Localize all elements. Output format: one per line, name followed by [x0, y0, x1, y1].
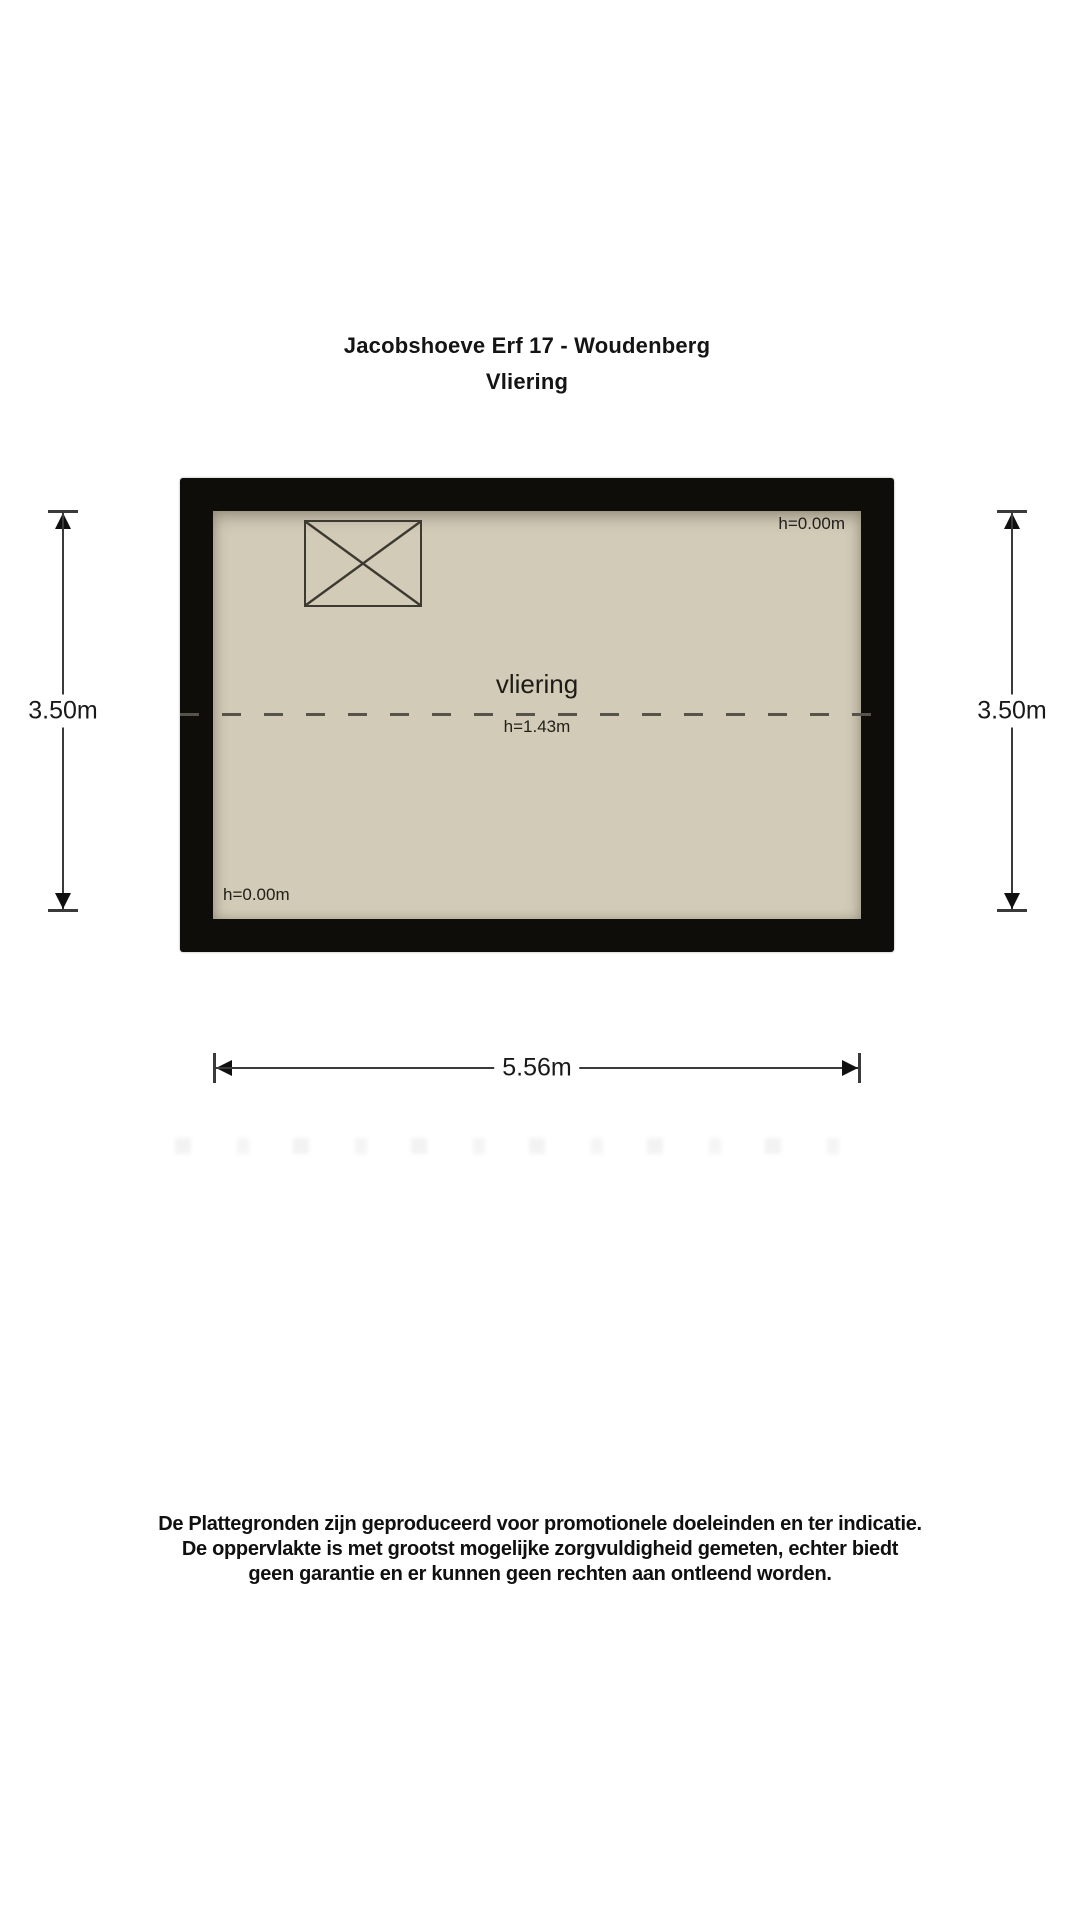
page-subtitle: Vliering — [0, 364, 1054, 400]
opening-x-symbol — [304, 520, 422, 607]
dimension-cap-right — [858, 1053, 861, 1083]
height-label-bottom-left: h=0.00m — [223, 885, 290, 905]
height-boundary-dashed-line — [180, 713, 894, 716]
arrow-down-icon — [55, 893, 71, 909]
dimension-right: 3.50m — [996, 510, 1028, 912]
title-block: Jacobshoeve Erf 17 - Woudenberg Vliering — [0, 328, 1054, 400]
dimension-left: 3.50m — [47, 510, 79, 912]
room-label: vliering — [213, 669, 861, 700]
dimension-bottom: 5.56m — [213, 1052, 861, 1084]
dimension-label-bottom: 5.56m — [494, 1053, 579, 1084]
floorplan-page: Jacobshoeve Erf 17 - Woudenberg Vliering… — [0, 0, 1080, 1920]
disclaimer-line: De oppervlakte is met grootst mogelijke … — [0, 1537, 1080, 1562]
floorplan: h=0.00m vliering h=1.43m h=0.00m — [180, 478, 894, 952]
disclaimer-text: De Plattegronden zijn geproduceerd voor … — [0, 1512, 1080, 1587]
dimension-cap-bottom — [997, 909, 1027, 912]
dimension-label-right: 3.50m — [973, 695, 1050, 728]
arrow-down-icon — [1004, 893, 1020, 909]
opening-x-icon — [306, 522, 420, 605]
faded-artifact-row — [175, 1138, 847, 1154]
height-label-center: h=1.43m — [213, 717, 861, 737]
disclaimer-line: geen garantie en er kunnen geen rechten … — [0, 1562, 1080, 1587]
disclaimer-line: De Plattegronden zijn geproduceerd voor … — [0, 1512, 1080, 1537]
height-label-top-right: h=0.00m — [778, 514, 845, 534]
dimension-cap-bottom — [48, 909, 78, 912]
page-title: Jacobshoeve Erf 17 - Woudenberg — [0, 328, 1054, 364]
dimension-label-left: 3.50m — [24, 695, 101, 728]
arrow-right-icon — [842, 1060, 858, 1076]
